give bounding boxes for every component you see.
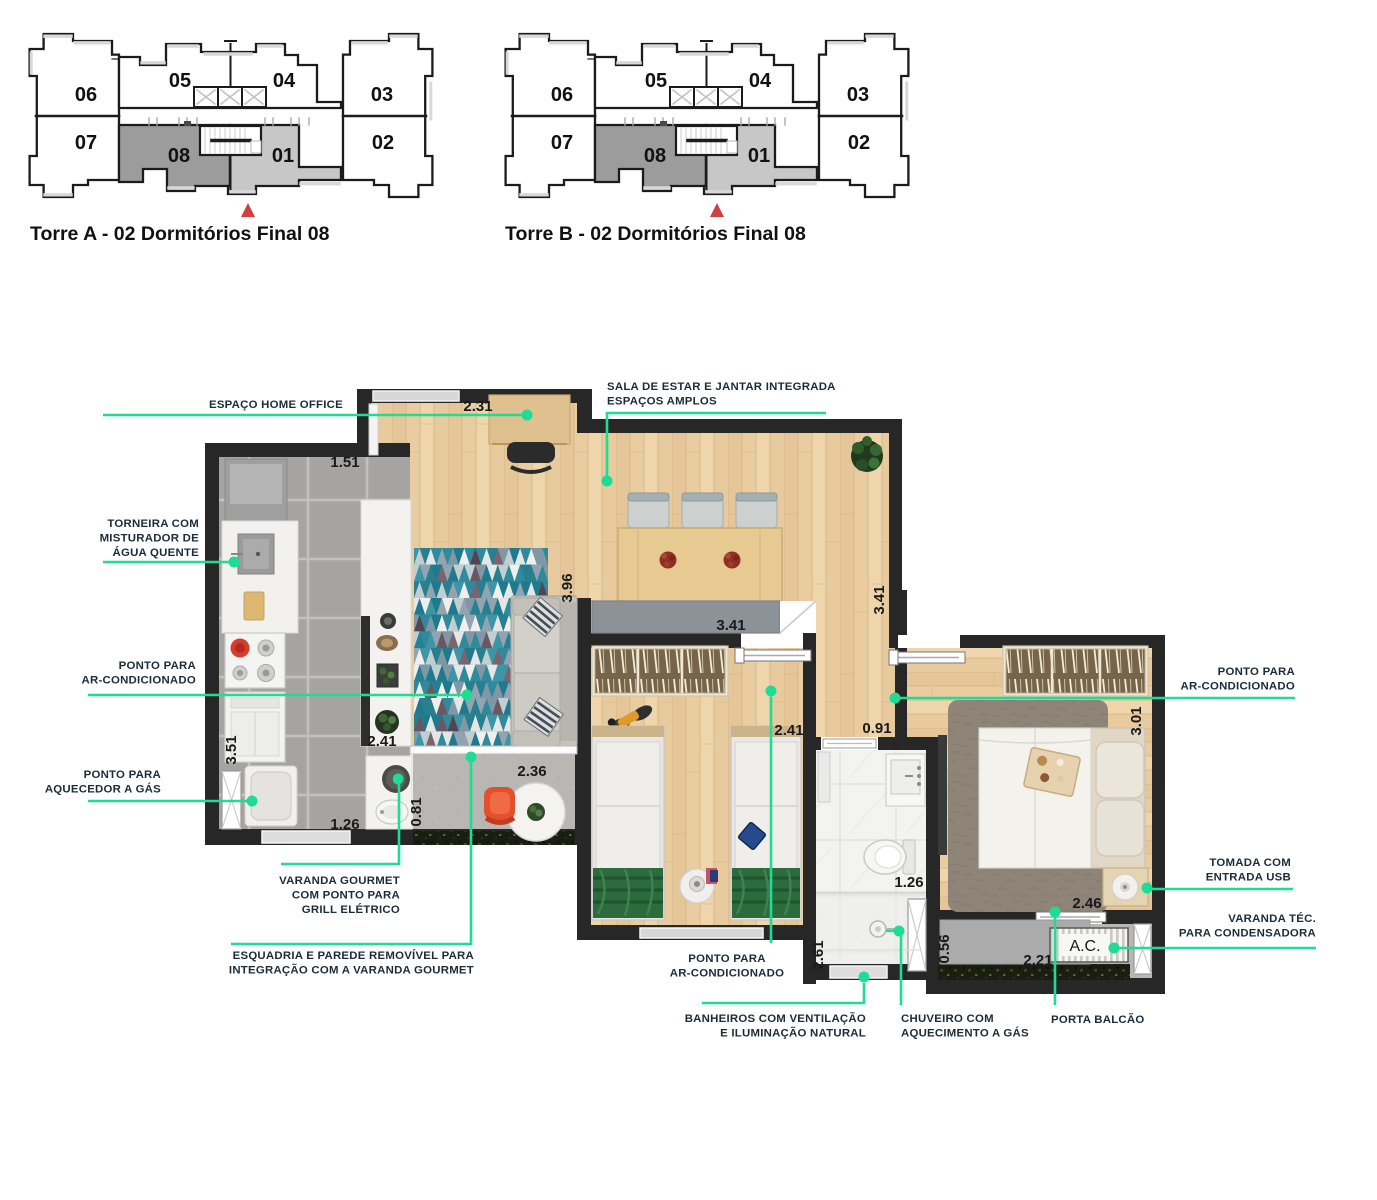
svg-text:TOMADA COM: TOMADA COM — [1209, 857, 1291, 869]
svg-text:3.41: 3.41 — [716, 617, 745, 634]
svg-text:2.31: 2.31 — [463, 398, 492, 415]
svg-text:COM PONTO PARA: COM PONTO PARA — [292, 890, 400, 902]
svg-text:VARANDA GOURMET: VARANDA GOURMET — [279, 875, 400, 887]
svg-text:07: 07 — [75, 132, 97, 154]
svg-text:ESPAÇOS AMPLOS: ESPAÇOS AMPLOS — [607, 396, 717, 408]
svg-text:2.41: 2.41 — [367, 733, 396, 750]
svg-text:E ILUMINAÇÃO NATURAL: E ILUMINAÇÃO NATURAL — [720, 1027, 866, 1040]
svg-text:SALA DE ESTAR E JANTAR INTEGRA: SALA DE ESTAR E JANTAR INTEGRADA — [607, 381, 836, 393]
svg-text:1.26: 1.26 — [894, 874, 923, 891]
svg-text:04: 04 — [273, 70, 296, 92]
svg-text:3.96: 3.96 — [559, 573, 576, 602]
svg-text:04: 04 — [749, 70, 772, 92]
svg-text:VARANDA TÉC.: VARANDA TÉC. — [1228, 912, 1316, 925]
svg-text:PONTO PARA: PONTO PARA — [84, 769, 161, 781]
svg-text:07: 07 — [551, 132, 573, 154]
svg-text:01: 01 — [272, 145, 294, 167]
svg-text:PONTO PARA: PONTO PARA — [688, 953, 765, 965]
svg-text:2.36: 2.36 — [517, 763, 546, 780]
svg-text:AR-CONDICIONADO: AR-CONDICIONADO — [82, 675, 197, 687]
svg-text:3.41: 3.41 — [871, 585, 888, 614]
svg-text:PONTO PARA: PONTO PARA — [119, 660, 196, 672]
svg-text:Torre B - 02 Dormitórios Final: Torre B - 02 Dormitórios Final 08 — [505, 223, 806, 245]
svg-text:2.61: 2.61 — [810, 940, 827, 969]
svg-text:PONTO PARA: PONTO PARA — [1218, 666, 1295, 678]
svg-text:ESPAÇO HOME OFFICE: ESPAÇO HOME OFFICE — [209, 399, 343, 411]
svg-text:ÁGUA QUENTE: ÁGUA QUENTE — [113, 546, 200, 559]
svg-text:TORNEIRA COM: TORNEIRA COM — [107, 518, 199, 530]
svg-text:INTEGRAÇÃO COM A VARANDA GOURM: INTEGRAÇÃO COM A VARANDA GOURMET — [229, 964, 474, 977]
svg-text:PORTA BALCÃO: PORTA BALCÃO — [1051, 1013, 1145, 1026]
svg-text:ESQUADRIA E PAREDE REMOVÍVEL P: ESQUADRIA E PAREDE REMOVÍVEL PARA — [233, 949, 474, 962]
svg-text:08: 08 — [644, 145, 666, 167]
svg-text:AR-CONDICIONADO: AR-CONDICIONADO — [1181, 681, 1296, 693]
svg-text:03: 03 — [371, 84, 393, 106]
svg-text:05: 05 — [169, 70, 191, 92]
svg-text:02: 02 — [372, 132, 394, 154]
svg-text:GRILL ELÉTRICO: GRILL ELÉTRICO — [302, 903, 400, 916]
svg-text:01: 01 — [748, 145, 770, 167]
svg-text:03: 03 — [847, 84, 869, 106]
svg-text:05: 05 — [645, 70, 667, 92]
svg-text:2.46: 2.46 — [1072, 895, 1101, 912]
svg-text:06: 06 — [551, 84, 573, 106]
svg-text:0.56: 0.56 — [936, 934, 953, 963]
svg-text:ENTRADA USB: ENTRADA USB — [1206, 872, 1291, 884]
svg-text:2.21: 2.21 — [1023, 952, 1052, 969]
svg-text:3.51: 3.51 — [223, 735, 240, 764]
svg-text:0.91: 0.91 — [862, 720, 891, 737]
svg-text:2.41: 2.41 — [774, 722, 803, 739]
svg-text:CHUVEIRO COM: CHUVEIRO COM — [901, 1013, 994, 1025]
svg-text:AR-CONDICIONADO: AR-CONDICIONADO — [670, 968, 785, 980]
svg-text:1.51: 1.51 — [330, 454, 359, 471]
svg-text:06: 06 — [75, 84, 97, 106]
svg-text:3.01: 3.01 — [1128, 706, 1145, 735]
svg-text:PARA CONDENSADORA: PARA CONDENSADORA — [1179, 928, 1316, 940]
svg-text:0.81: 0.81 — [408, 797, 425, 826]
svg-text:AQUECEDOR A GÁS: AQUECEDOR A GÁS — [45, 783, 161, 796]
svg-text:BANHEIROS COM VENTILAÇÃO: BANHEIROS COM VENTILAÇÃO — [685, 1012, 866, 1025]
svg-text:AQUECIMENTO A GÁS: AQUECIMENTO A GÁS — [901, 1027, 1029, 1040]
svg-text:A.C.: A.C. — [1069, 938, 1100, 955]
svg-text:MISTURADOR DE: MISTURADOR DE — [100, 533, 200, 545]
svg-text:Torre A - 02 Dormitórios Final: Torre A - 02 Dormitórios Final 08 — [30, 223, 330, 245]
svg-text:08: 08 — [168, 145, 190, 167]
svg-text:02: 02 — [848, 132, 870, 154]
svg-text:1.26: 1.26 — [330, 816, 359, 833]
